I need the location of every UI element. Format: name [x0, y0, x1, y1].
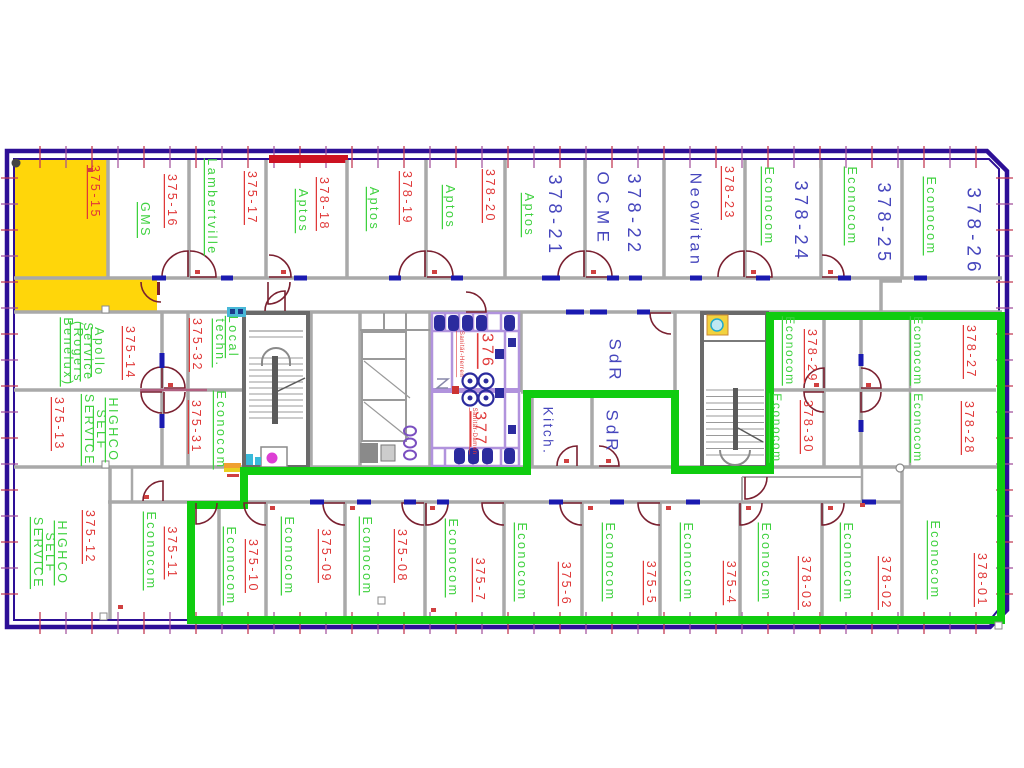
svg-text:Aptos: Aptos — [296, 189, 310, 233]
svg-text:Econocom: Econocom — [360, 516, 374, 595]
svg-text:378-30: 378-30 — [801, 400, 815, 454]
svg-text:Econocom: Econocom — [841, 522, 855, 601]
svg-text:378-20: 378-20 — [483, 169, 497, 223]
svg-text:378-19: 378-19 — [400, 171, 414, 225]
svg-text:375-09: 375-09 — [319, 529, 333, 583]
svg-text:SdR: SdR — [603, 409, 622, 454]
svg-text:Econocom: Econocom — [928, 520, 942, 599]
svg-text:Econocom: Econocom — [681, 522, 695, 601]
svg-text:375-15: 375-15 — [88, 165, 102, 219]
svg-text:Sanitär-Damen: Sanitär-Damen — [471, 408, 477, 455]
svg-text:375-6: 375-6 — [559, 562, 573, 606]
svg-text:SdR: SdR — [606, 338, 625, 383]
svg-text:SERVICE: SERVICE — [31, 517, 45, 589]
svg-text:378-01: 378-01 — [975, 553, 989, 607]
svg-text:375-32: 375-32 — [190, 318, 204, 372]
svg-text:Aptos: Aptos — [367, 187, 381, 231]
svg-text:375-14: 375-14 — [123, 326, 137, 380]
svg-text:Econocom: Econocom — [911, 393, 925, 463]
svg-text:378-21: 378-21 — [545, 174, 565, 257]
svg-text:Aptos: Aptos — [522, 193, 536, 237]
svg-text:Econocom: Econocom — [214, 390, 228, 469]
svg-text:375-4: 375-4 — [724, 561, 738, 605]
svg-text:GMS: GMS — [138, 202, 152, 238]
svg-text:378-28: 378-28 — [962, 401, 976, 455]
svg-text:375-08: 375-08 — [395, 529, 409, 583]
svg-text:OCME: OCME — [594, 172, 613, 249]
svg-text:Econocom: Econocom — [770, 393, 784, 463]
svg-text:375-17: 375-17 — [245, 171, 259, 225]
svg-text:Aptos: Aptos — [443, 185, 457, 229]
svg-text:378-02: 378-02 — [879, 556, 893, 610]
svg-text:375-31: 375-31 — [189, 400, 203, 454]
svg-text:Econocom: Econocom — [144, 511, 158, 590]
svg-text:Econocom: Econocom — [845, 166, 859, 245]
svg-text:Econocom: Econocom — [762, 166, 776, 245]
svg-text:Econocom: Econocom — [446, 518, 460, 597]
svg-text:375-10: 375-10 — [246, 539, 260, 593]
svg-text:Neowitan: Neowitan — [687, 173, 704, 268]
svg-text:375-13: 375-13 — [52, 397, 66, 451]
svg-text:Local: Local — [226, 316, 240, 358]
svg-text:Econocom: Econocom — [911, 316, 925, 386]
svg-text:378-25: 378-25 — [874, 182, 894, 265]
svg-text:375-5: 375-5 — [644, 561, 658, 605]
svg-text:375-7: 375-7 — [473, 558, 487, 602]
svg-text:375-12: 375-12 — [83, 510, 97, 564]
svg-text:Econocom: Econocom — [783, 316, 797, 386]
svg-text:Econocom: Econocom — [759, 522, 773, 601]
svg-text:Benelux): Benelux) — [61, 317, 75, 386]
svg-text:378-24: 378-24 — [791, 180, 811, 263]
svg-text:SERVICE: SERVICE — [82, 394, 96, 466]
svg-text:Econocom: Econocom — [282, 516, 296, 595]
svg-text:378-22: 378-22 — [624, 173, 644, 256]
svg-text:Econocom: Econocom — [603, 522, 617, 601]
svg-text:techn.: techn. — [213, 318, 227, 367]
svg-text:378-26: 378-26 — [963, 187, 984, 276]
svg-text:378-29: 378-29 — [805, 329, 819, 383]
svg-text:378-03: 378-03 — [799, 556, 813, 610]
svg-text:378-18: 378-18 — [317, 177, 331, 231]
svg-text:378-23: 378-23 — [722, 166, 736, 220]
svg-text:Sanitär-Herren: Sanitär-Herren — [458, 331, 464, 377]
svg-text:Econocom: Econocom — [224, 526, 238, 605]
svg-text:378-27: 378-27 — [964, 325, 978, 379]
svg-text:Lambertville: Lambertville — [205, 158, 219, 255]
svg-text:375-16: 375-16 — [165, 174, 179, 228]
svg-text:376: 376 — [479, 333, 496, 369]
svg-text:375-11: 375-11 — [165, 527, 179, 580]
svg-text:Kitch.: Kitch. — [541, 407, 556, 456]
svg-text:Econocom: Econocom — [924, 176, 938, 255]
svg-text:Econocom: Econocom — [515, 522, 529, 601]
